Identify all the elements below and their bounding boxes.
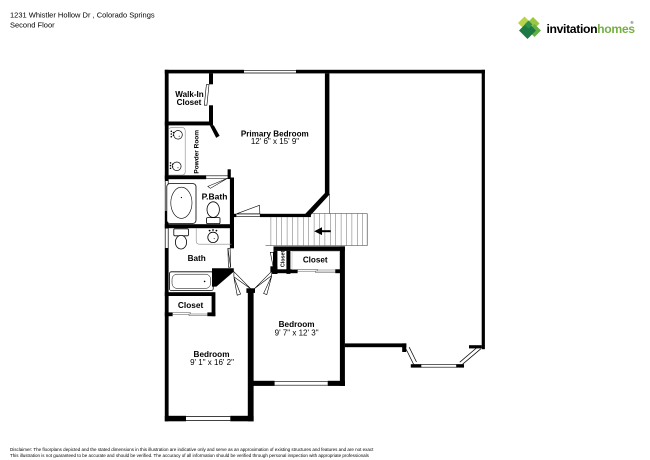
svg-text:®: ®	[631, 20, 634, 25]
svg-text:12' 6" x 15' 9": 12' 6" x 15' 9"	[251, 137, 299, 146]
svg-text:Closet: Closet	[281, 250, 287, 267]
svg-text:Disclaimer: The floorplans dep: Disclaimer: The floorplans depicted and …	[10, 447, 374, 452]
svg-text:9' 7" x 12' 3": 9' 7" x 12' 3"	[275, 328, 319, 337]
svg-text:Closet: Closet	[177, 98, 202, 107]
svg-text:P.Bath: P.Bath	[202, 192, 228, 202]
svg-text:Powder Room: Powder Room	[194, 130, 201, 174]
svg-text:1231 Whistler Hollow Dr , Colo: 1231 Whistler Hollow Dr , Colorado Sprin…	[10, 10, 155, 19]
svg-text:Closet: Closet	[178, 300, 204, 310]
svg-text:Closet: Closet	[303, 256, 328, 265]
svg-text:Bath: Bath	[188, 254, 206, 263]
svg-text:9' 1" x 16' 2": 9' 1" x 16' 2"	[190, 358, 234, 367]
svg-text:Second Floor: Second Floor	[10, 21, 55, 30]
svg-text:This illustration is not guara: This illustration is not guaranteed to b…	[10, 453, 370, 458]
svg-text:invitationhomes: invitationhomes	[547, 22, 636, 36]
